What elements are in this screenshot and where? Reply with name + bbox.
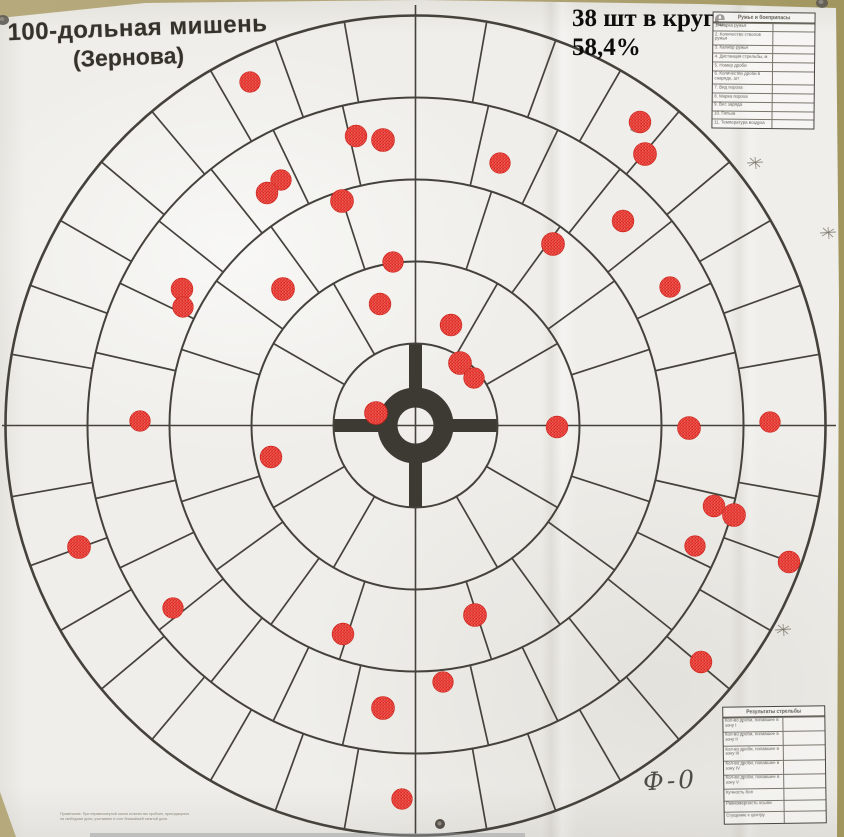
bottom-edge-shadow [90,833,525,837]
table-row: Кол-во дроби, попавшее в зону I [723,716,824,732]
table-row-label: Равномерность осыпи [725,801,784,812]
table-row-empty-value [783,800,826,811]
photo-of-target: { "photo": { "background_color": "#b0a47… [0,0,844,837]
table-row-label: Сгущение к центру [725,812,784,823]
table-row: Кол-во дроби, попавшее в зону IV [724,759,825,775]
table-row: Сгущение к центру [725,811,826,824]
table-row-empty-value [772,32,815,45]
table-row: Кол-во дроби, попавшее в зону III [724,744,825,760]
table-row-label: 11. Температура воздуха [712,120,771,128]
target-title: 100-дольная мишень (Зернова) [7,11,249,75]
table-row-empty-value [771,72,814,85]
table-row-label: 2. Количество стволов ружья [713,32,772,45]
hit-percentage-label: 58,4% [572,33,725,62]
handwritten-mark: Ф-0 [642,765,698,797]
table-row-label: Кол-во дроби, попавшее в зону I [723,717,782,731]
table-row-empty-value [782,717,825,731]
table-row-empty-value [771,120,814,128]
table-row: 11. Температура воздуха [712,119,813,129]
table-row-empty-value [782,745,825,759]
table-row: Кол-во дроби, попавшее в зону V [724,773,825,789]
shooting-results-table: Результаты стрельбы Кол-во дроби, попавш… [722,705,827,824]
table-row: Кол-во дроби, попавшее в зону II [724,730,825,746]
table-row-label: Кол-во дроби, попавшее в зону III [724,746,783,760]
hit-count-annotation: 38 шт в круге 58,4% [572,4,725,62]
table-row-empty-value [783,774,826,788]
table-row-label: Кол-во дроби, попавшее в зону IV [724,760,783,774]
table-row-empty-value [783,812,826,823]
footnote-line2: на свободные доли, учитывают в счет ближ… [60,817,195,822]
table-row-empty-value [783,789,826,800]
table-row-label: Кол-во дроби, попавшее в зону II [724,732,783,746]
table-row: 6. Количество дроби в снаряде, шт [713,70,814,85]
footnote-text: Примечание. При неравномерной осыпи коли… [60,812,195,823]
table-row: 2. Количество стволов ружья [713,31,814,46]
table-row-label: Кол-во дроби, попавшее в зону V [724,775,783,789]
hits-in-circle-label: 38 шт в круге [572,4,725,33]
table-row-label: Кучность боя [724,789,783,800]
gun-and-ammo-table: Ружье и боеприпасы 1. Марка ружья2. Коли… [711,11,815,129]
target-rings-group [2,5,836,836]
table-row-label: 6. Количество дроби в снаряде, шт [713,71,772,84]
table-row-empty-value [782,760,825,774]
table-row-empty-value [782,731,825,745]
